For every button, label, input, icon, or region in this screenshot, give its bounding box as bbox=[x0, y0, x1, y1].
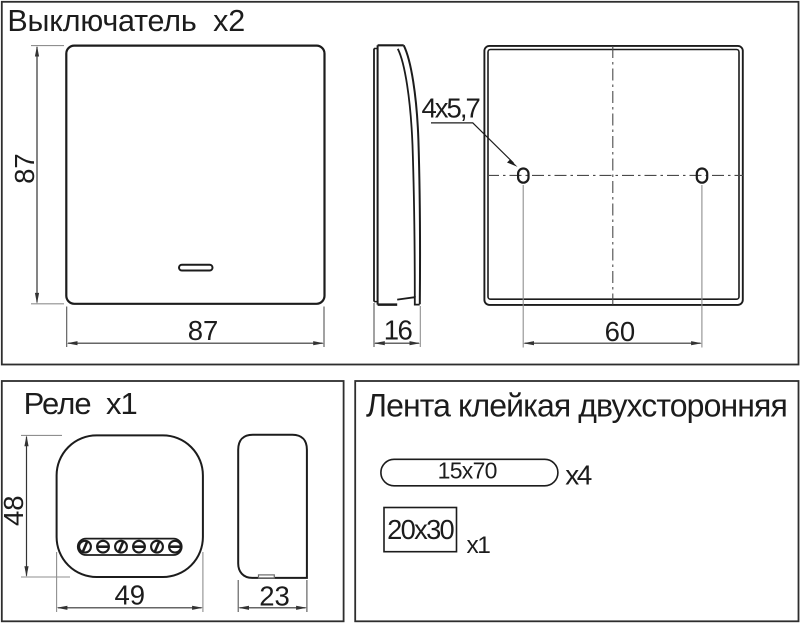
svg-text:Выключатель x2: Выключатель x2 bbox=[7, 4, 245, 38]
svg-text:15x70: 15x70 bbox=[438, 458, 497, 484]
svg-text:20x30: 20x30 bbox=[387, 514, 454, 545]
svg-text:16: 16 bbox=[384, 315, 413, 346]
svg-text:4x5,7: 4x5,7 bbox=[422, 93, 480, 124]
svg-text:49: 49 bbox=[115, 580, 146, 611]
svg-text:x1: x1 bbox=[467, 532, 491, 559]
svg-text:x4: x4 bbox=[565, 460, 592, 491]
svg-text:60: 60 bbox=[605, 316, 636, 347]
svg-text:87: 87 bbox=[188, 315, 219, 346]
svg-text:23: 23 bbox=[259, 580, 290, 611]
svg-text:48: 48 bbox=[0, 495, 29, 526]
svg-text:Лента клейкая двухсторонняя: Лента клейкая двухсторонняя bbox=[366, 387, 787, 423]
svg-text:87: 87 bbox=[9, 153, 40, 184]
svg-text:Реле x1: Реле x1 bbox=[24, 386, 137, 421]
